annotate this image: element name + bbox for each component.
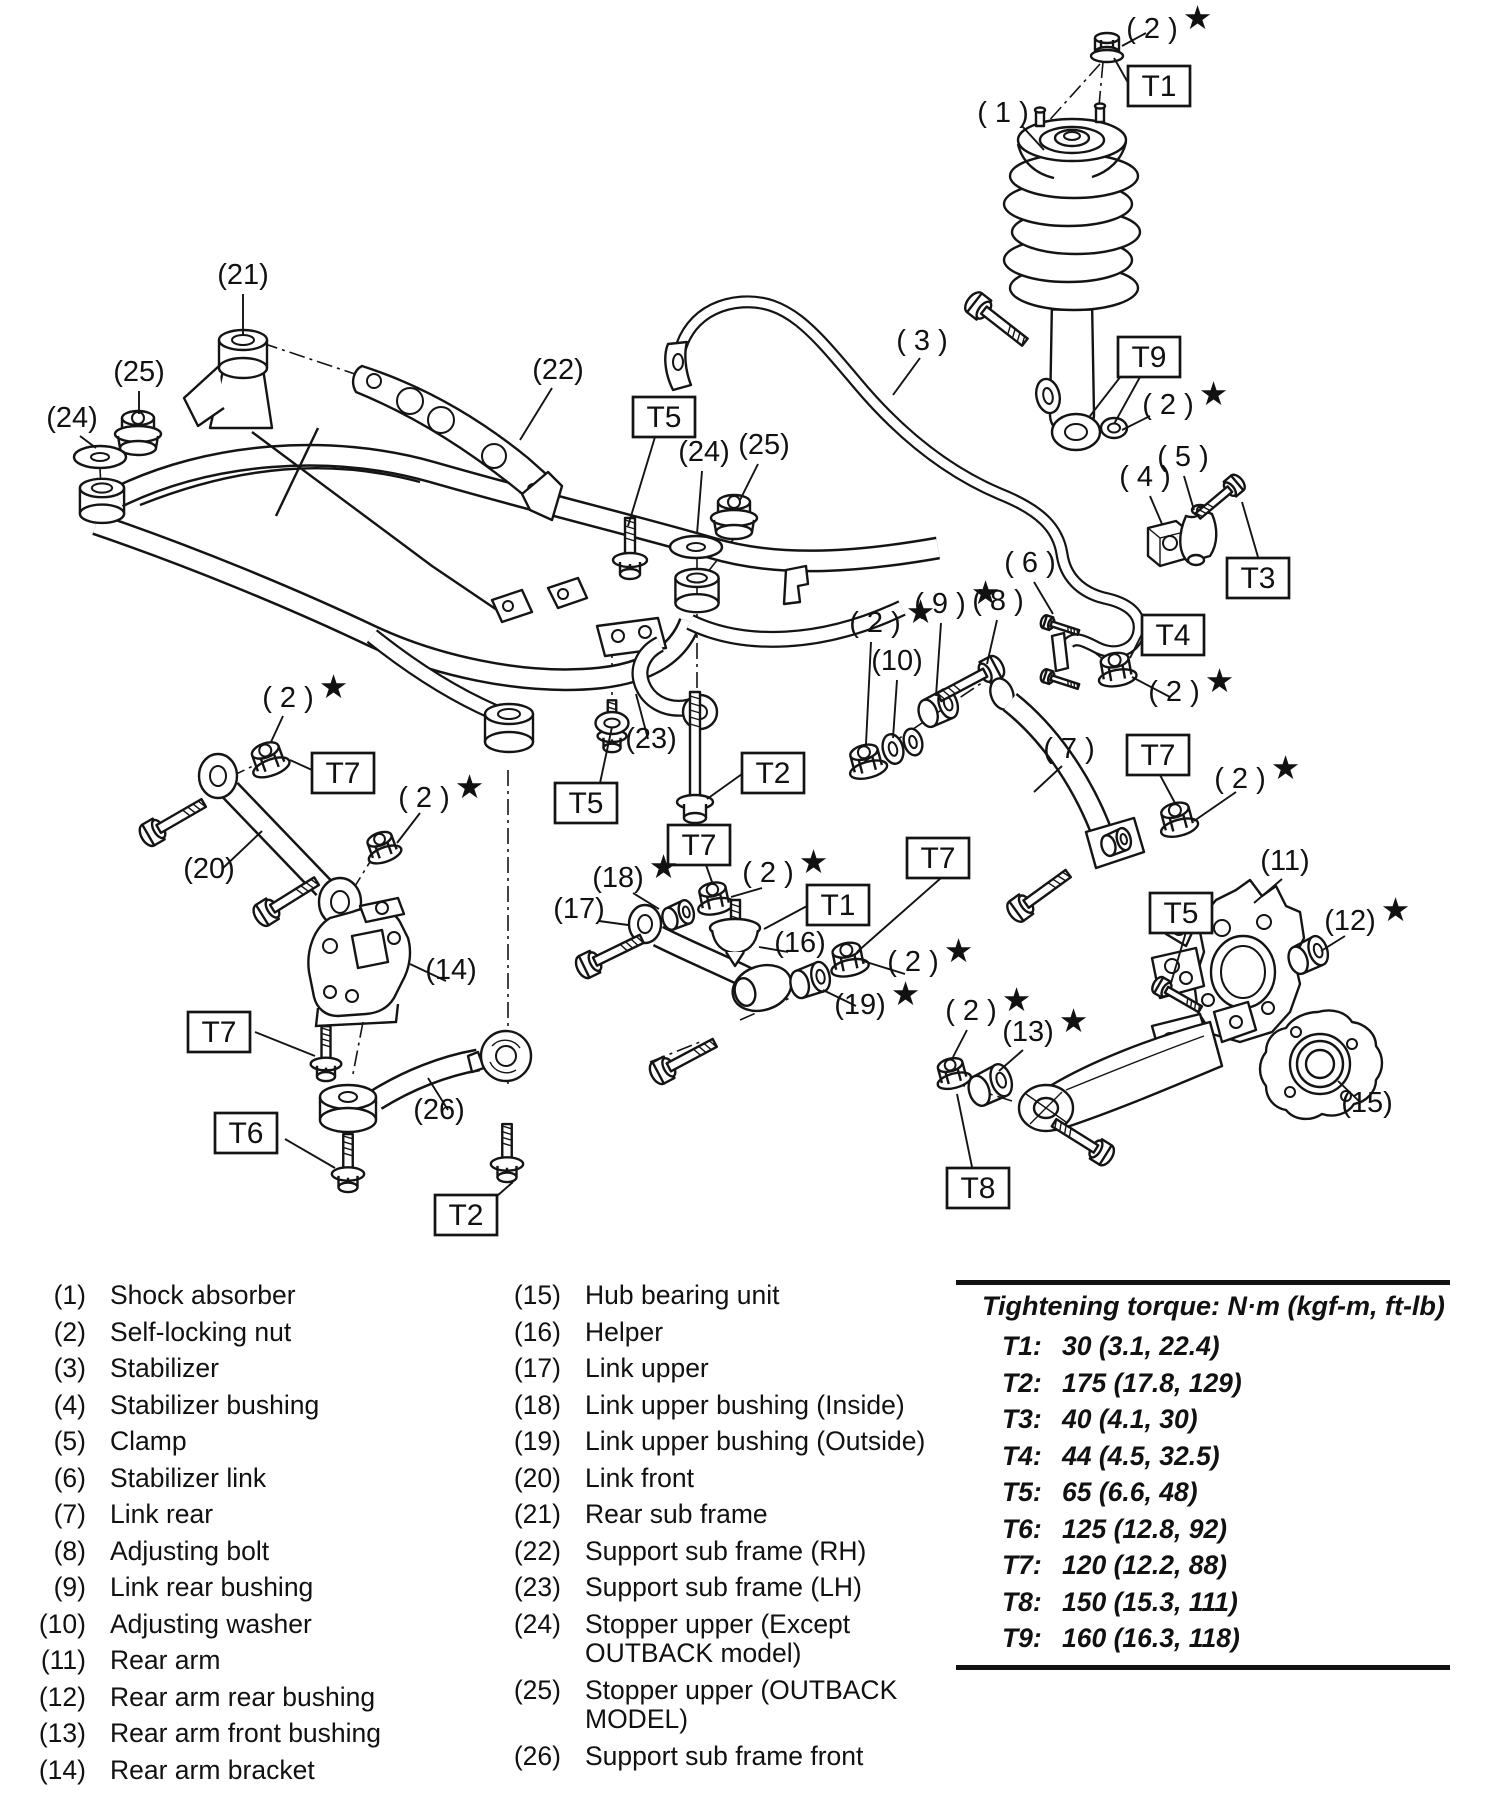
torque-row-id: T1: (1002, 1328, 1062, 1365)
legend-item-number: (24) (505, 1610, 561, 1669)
callout-label: (15) (1341, 1087, 1393, 1119)
callout-label: ( 2 ) (945, 995, 997, 1027)
legend-item: (3)Stabilizer (30, 1354, 470, 1384)
torque-box-T1: T1 (1128, 66, 1190, 106)
callout-label: (12) (1324, 905, 1376, 937)
callout-label: (24) (678, 436, 730, 468)
callout-label: (13) (1002, 1016, 1054, 1048)
parts-legend-right-column: (15)Hub bearing unit(16)Helper(17)Link u… (505, 1281, 935, 1778)
legend-item-number: (16) (505, 1318, 561, 1348)
legend-item: (7)Link rear (30, 1500, 470, 1530)
torque-row: T9:160 (16.3, 118) (1002, 1620, 1450, 1657)
torque-row-id: T9: (1002, 1620, 1062, 1657)
torque-box-label: T2 (755, 757, 790, 790)
torque-box-label: T7 (201, 1016, 236, 1049)
callout-label: (21) (217, 259, 269, 291)
callout-label: (26) (413, 1094, 465, 1126)
torque-box-T6: T6 (215, 1113, 277, 1153)
torque-table-title: Tightening torque: N·m (kgf-m, ft-lb) (982, 1291, 1450, 1322)
torque-box-label: T7 (681, 829, 716, 862)
torque-row: T2:175 (17.8, 129) (1002, 1365, 1450, 1402)
legend-item-number: (19) (505, 1427, 561, 1457)
torque-box-T4: T4 (1142, 615, 1204, 655)
callout-label: (18) (592, 862, 644, 894)
legend-item-label: Stopper upper (OUTBACK MODEL) (585, 1676, 930, 1735)
legend-item-number: (14) (30, 1756, 86, 1786)
torque-box-T5: T5 (1150, 893, 1212, 933)
legend-item-number: (6) (30, 1464, 86, 1494)
legend-item-number: (15) (505, 1281, 561, 1311)
torque-box-label: T8 (960, 1172, 995, 1205)
legend-item-number: (4) (30, 1391, 86, 1421)
legend-item-number: (9) (30, 1573, 86, 1603)
torque-box-label: T7 (920, 842, 955, 875)
callout-label: ( 2 ) (262, 682, 314, 714)
legend-item: (17)Link upper (505, 1354, 935, 1384)
torque-row-value: 150 (15.3, 111) (1062, 1587, 1238, 1617)
torque-row-value: 175 (17.8, 129) (1062, 1368, 1242, 1398)
legend-item: (19)Link upper bushing (Outside) (505, 1427, 935, 1457)
legend-item-label: Rear arm front bushing (110, 1719, 455, 1749)
legend-item: (24)Stopper upper (Except OUTBACK model) (505, 1610, 935, 1669)
legend-item-label: Self-locking nut (110, 1318, 455, 1348)
torque-box-T7: T7 (188, 1012, 250, 1052)
torque-box-label: T7 (325, 757, 360, 790)
legend-item-number: (2) (30, 1318, 86, 1348)
rear-sub-frame-drawing (80, 330, 938, 752)
star-icon: ★ (649, 848, 679, 885)
legend-item-label: Rear sub frame (585, 1500, 930, 1530)
torque-row-id: T5: (1002, 1474, 1062, 1511)
torque-box-label: T9 (1131, 341, 1166, 374)
legend-item-label: Support sub frame (RH) (585, 1537, 930, 1567)
legend-item-number: (21) (505, 1500, 561, 1530)
legend-item: (25)Stopper upper (OUTBACK MODEL) (505, 1676, 935, 1735)
torque-row-id: T3: (1002, 1401, 1062, 1438)
legend-item-label: Rear arm (110, 1646, 455, 1676)
legend-item-label: Adjusting washer (110, 1610, 455, 1640)
legend-item-label: Stabilizer bushing (110, 1391, 455, 1421)
star-icon: ★ (891, 975, 921, 1012)
torque-row-value: 44 (4.5, 32.5) (1062, 1441, 1220, 1471)
callout-label: ( 2 ) (887, 946, 939, 978)
tightening-torque-table: Tightening torque: N·m (kgf-m, ft-lb) T1… (956, 1280, 1450, 1670)
torque-box-T5: T5 (555, 783, 617, 823)
torque-box-T7: T7 (1127, 735, 1189, 775)
legend-item: (5)Clamp (30, 1427, 470, 1457)
callout-label: ( 5 ) (1157, 441, 1209, 473)
callout-label: ( 2 ) (1214, 763, 1266, 795)
legend-item-label: Stopper upper (Except OUTBACK model) (585, 1610, 930, 1669)
legend-item-number: (18) (505, 1391, 561, 1421)
callout-label: (19) (834, 989, 886, 1021)
legend-item-label: Helper (585, 1318, 930, 1348)
star-icon: ★ (1205, 662, 1235, 699)
legend-item-number: (26) (505, 1742, 561, 1772)
torque-box-T1: T1 (807, 885, 869, 925)
legend-item-label: Support sub frame front (585, 1742, 930, 1772)
callout-label: (17) (553, 893, 605, 925)
callout-label: (25) (113, 356, 165, 388)
torque-row-value: 30 (3.1, 22.4) (1062, 1331, 1220, 1361)
legend-item-label: Link upper bushing (Inside) (585, 1391, 930, 1421)
callout-label: (16) (774, 927, 826, 959)
legend-item-label: Support sub frame (LH) (585, 1573, 930, 1603)
legend-item: (1)Shock absorber (30, 1281, 470, 1311)
callout-label: ( 2 ) (849, 607, 901, 639)
torque-box-T9: T9 (1118, 337, 1180, 377)
torque-box-T7: T7 (907, 838, 969, 878)
torque-box-label: T5 (646, 401, 681, 434)
callout-label: ( 2 ) (1126, 13, 1178, 45)
callout-label: ( 2 ) (1142, 389, 1194, 421)
torque-row: T8:150 (15.3, 111) (1002, 1584, 1450, 1621)
legend-item: (21)Rear sub frame (505, 1500, 935, 1530)
torque-box-label: T5 (568, 787, 603, 820)
callout-label: ( 1 ) (977, 97, 1029, 129)
star-icon: ★ (1183, 0, 1213, 36)
torque-row-id: T8: (1002, 1584, 1062, 1621)
legend-item: (16)Helper (505, 1318, 935, 1348)
torque-row: T3:40 (4.1, 30) (1002, 1401, 1450, 1438)
callout-label: (11) (1260, 845, 1309, 877)
legend-item: (9)Link rear bushing (30, 1573, 470, 1603)
torque-row: T7:120 (12.2, 88) (1002, 1547, 1450, 1584)
legend-item-number: (13) (30, 1719, 86, 1749)
parts-legend-left-column: (1)Shock absorber(2)Self-locking nut(3)S… (30, 1281, 470, 1792)
callout-label: ( 2 ) (742, 857, 794, 889)
rear-arm-bracket-drawing (308, 898, 410, 1081)
torque-row: T5:65 (6.6, 48) (1002, 1474, 1450, 1511)
link-rear-drawing (844, 653, 1200, 925)
legend-item-number: (25) (505, 1676, 561, 1735)
torque-box-T5: T5 (633, 397, 695, 437)
torque-box-label: T7 (1140, 739, 1175, 772)
torque-row-value: 40 (4.1, 30) (1062, 1404, 1198, 1434)
callout-label: ( 2 ) (1148, 676, 1200, 708)
star-icon: ★ (1199, 375, 1229, 412)
torque-row-id: T7: (1002, 1547, 1062, 1584)
torque-box-T8: T8 (947, 1168, 1009, 1208)
torque-row-id: T2: (1002, 1365, 1062, 1402)
star-icon: ★ (906, 593, 936, 630)
callout-label: ( 2 ) (398, 782, 450, 814)
self-locking-nut-top (1091, 33, 1123, 62)
star-icon: ★ (1381, 891, 1411, 928)
legend-item-number: (5) (30, 1427, 86, 1457)
legend-item: (14)Rear arm bracket (30, 1756, 470, 1786)
legend-item-label: Hub bearing unit (585, 1281, 930, 1311)
legend-item-label: Link upper bushing (Outside) (585, 1427, 930, 1457)
legend-item: (20)Link front (505, 1464, 935, 1494)
legend-item-number: (17) (505, 1354, 561, 1384)
callout-label: ( 8 ) (972, 585, 1024, 617)
torque-row-value: 160 (16.3, 118) (1062, 1623, 1240, 1653)
torque-row-value: 125 (12.8, 92) (1062, 1514, 1227, 1544)
callout-label: (23) (625, 723, 677, 755)
legend-item-number: (12) (30, 1683, 86, 1713)
legend-item-label: Rear arm rear bushing (110, 1683, 455, 1713)
callout-label: (24) (46, 402, 98, 434)
legend-item-number: (1) (30, 1281, 86, 1311)
legend-item: (22)Support sub frame (RH) (505, 1537, 935, 1567)
torque-row-id: T6: (1002, 1511, 1062, 1548)
torque-box-T3: T3 (1227, 558, 1289, 598)
star-icon: ★ (1002, 981, 1032, 1018)
callout-label: (22) (532, 354, 584, 386)
torque-box-label: T2 (448, 1199, 483, 1232)
legend-item: (23)Support sub frame (LH) (505, 1573, 935, 1603)
star-icon: ★ (799, 843, 829, 880)
callout-label: (10) (871, 645, 923, 677)
legend-item: (2)Self-locking nut (30, 1318, 470, 1348)
torque-row: T6:125 (12.8, 92) (1002, 1511, 1450, 1548)
legend-item-number: (7) (30, 1500, 86, 1530)
legend-item: (26)Support sub frame front (505, 1742, 935, 1772)
legend-item: (8)Adjusting bolt (30, 1537, 470, 1567)
torque-row-value: 65 (6.6, 48) (1062, 1477, 1198, 1507)
legend-item: (18)Link upper bushing (Inside) (505, 1391, 935, 1421)
legend-item-label: Link front (585, 1464, 930, 1494)
support-sub-frame-rh-drawing (353, 366, 562, 520)
star-icon: ★ (944, 932, 974, 969)
callout-label: ( 6 ) (1004, 547, 1056, 579)
legend-item-number: (23) (505, 1573, 561, 1603)
legend-item-label: Clamp (110, 1427, 455, 1457)
callout-label: (20) (183, 853, 235, 885)
callout-label: ( 7 ) (1043, 733, 1095, 765)
legend-item: (11)Rear arm (30, 1646, 470, 1676)
legend-item-number: (10) (30, 1610, 86, 1640)
diagram-canvas: T1T9T5T3T4T7T7T5T2T7T1T7T5T7T6T2T8( 2 )★… (0, 0, 1504, 1260)
torque-box-label: T1 (820, 889, 855, 922)
legend-item-label: Link upper (585, 1354, 930, 1384)
legend-item-number: (11) (30, 1646, 86, 1676)
legend-item-label: Stabilizer (110, 1354, 455, 1384)
torque-box-label: T1 (1141, 70, 1176, 103)
legend-item-label: Link rear (110, 1500, 455, 1530)
legend-item-number: (20) (505, 1464, 561, 1494)
torque-box-T7: T7 (312, 753, 374, 793)
torque-table-rows: T1:30 (3.1, 22.4)T2:175 (17.8, 129)T3:40… (956, 1328, 1450, 1657)
legend-item-label: Adjusting bolt (110, 1537, 455, 1567)
legend-item-number: (8) (30, 1537, 86, 1567)
legend-item: (12)Rear arm rear bushing (30, 1683, 470, 1713)
legend-item: (13)Rear arm front bushing (30, 1719, 470, 1749)
torque-row-id: T4: (1002, 1438, 1062, 1475)
torque-box-label: T5 (1163, 897, 1198, 930)
legend-item-label: Stabilizer link (110, 1464, 455, 1494)
legend-item-label: Link rear bushing (110, 1573, 455, 1603)
torque-box-T2: T2 (435, 1195, 497, 1235)
torque-box-label: T6 (228, 1117, 263, 1150)
callout-label: (25) (738, 429, 790, 461)
star-icon: ★ (1271, 749, 1301, 786)
star-icon: ★ (319, 668, 349, 705)
star-icon: ★ (1059, 1002, 1089, 1039)
torque-row: T4:44 (4.5, 32.5) (1002, 1438, 1450, 1475)
callout-label: ( 3 ) (896, 325, 948, 357)
legend-item: (4)Stabilizer bushing (30, 1391, 470, 1421)
self-locking-nut-bottom (1101, 418, 1127, 438)
legend-item-label: Shock absorber (110, 1281, 455, 1311)
suspension-exploded-diagram: T1T9T5T3T4T7T7T5T2T7T1T7T5T7T6T2T8( 2 )★… (0, 0, 1504, 1260)
torque-box-T2: T2 (742, 753, 804, 793)
torque-row-value: 120 (12.2, 88) (1062, 1550, 1227, 1580)
legend-item: (6)Stabilizer link (30, 1464, 470, 1494)
callout-label: (14) (425, 954, 477, 986)
legend-item-number: (3) (30, 1354, 86, 1384)
legend-item-number: (22) (505, 1537, 561, 1567)
legend-item: (10)Adjusting washer (30, 1610, 470, 1640)
stabilizer-link-drawing (1039, 614, 1138, 693)
torque-box-label: T3 (1240, 562, 1275, 595)
legend-item: (15)Hub bearing unit (505, 1281, 935, 1311)
star-icon: ★ (455, 768, 485, 805)
legend-item-label: Rear arm bracket (110, 1756, 455, 1786)
torque-row: T1:30 (3.1, 22.4) (1002, 1328, 1450, 1365)
torque-box-label: T4 (1155, 619, 1190, 652)
clamp-drawing (1180, 472, 1247, 565)
